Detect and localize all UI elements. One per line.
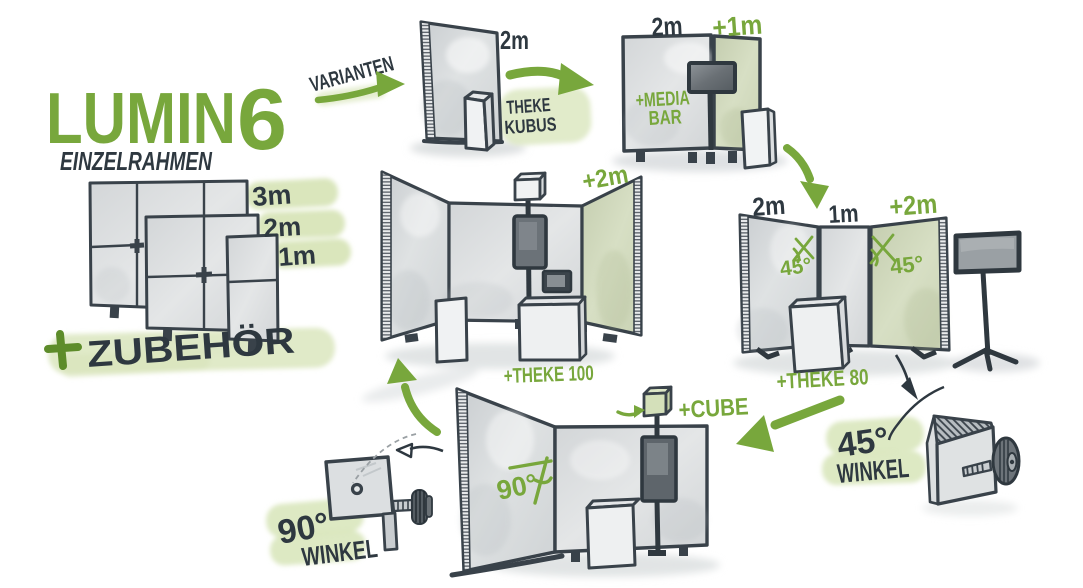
svg-text:KUBUS: KUBUS — [504, 114, 557, 139]
svg-text:+2m: +2m — [888, 189, 938, 222]
svg-text:+THEKE 100: +THEKE 100 — [503, 362, 594, 388]
svg-text:1m: 1m — [277, 239, 317, 272]
svg-text:EINZELRAHMEN: EINZELRAHMEN — [60, 146, 213, 176]
svg-text:1m: 1m — [828, 199, 859, 229]
svg-text:45°: 45° — [778, 254, 813, 281]
svg-text:2m: 2m — [751, 190, 786, 222]
svg-text:3m: 3m — [251, 179, 292, 212]
svg-text:6: 6 — [237, 72, 287, 168]
svg-text:+1m: +1m — [711, 10, 763, 43]
svg-text:2m: 2m — [263, 211, 302, 243]
svg-text:+CUBE: +CUBE — [678, 393, 749, 424]
svg-text:2m: 2m — [651, 10, 684, 42]
svg-text:45°: 45° — [889, 251, 925, 279]
svg-text:+THEKE 80: +THEKE 80 — [776, 364, 869, 394]
svg-text:WINKEL: WINKEL — [836, 453, 910, 489]
svg-text:BAR: BAR — [648, 106, 683, 130]
svg-text:2m: 2m — [500, 25, 529, 55]
